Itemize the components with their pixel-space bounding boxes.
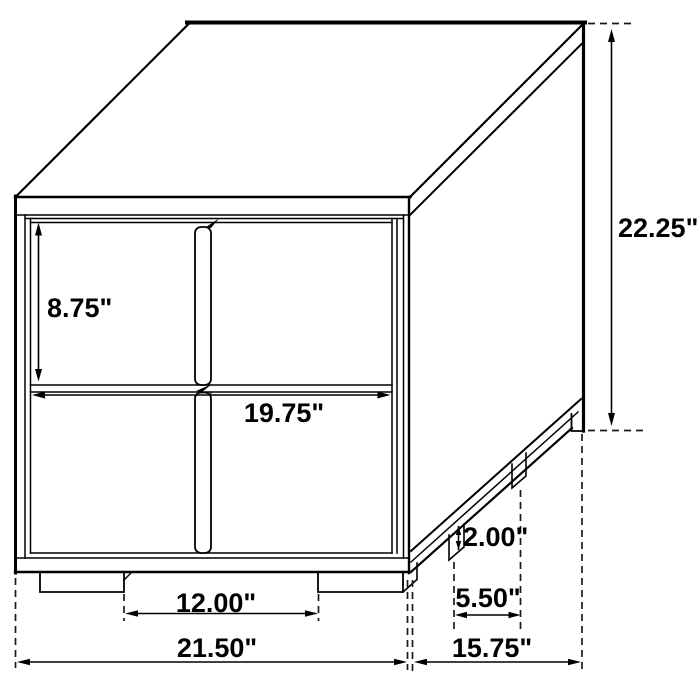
label-side-leg-spacing: 5.50" [455, 583, 520, 613]
label-drawer-width: 19.75" [244, 398, 324, 428]
extension-lines [16, 24, 649, 672]
legs [40, 414, 584, 592]
dim-line-leg-height [456, 526, 461, 550]
dimension-lines [17, 29, 615, 665]
dimension-labels: 8.75" 19.75" 22.25" 2.00" 5.50" 12.00" 2… [47, 213, 698, 663]
label-overall-depth: 15.75" [452, 633, 532, 663]
nightstand-line-drawing: 8.75" 19.75" 22.25" 2.00" 5.50" 12.00" 2… [0, 0, 700, 700]
label-front-leg-spacing: 12.00" [176, 588, 256, 618]
front-face [15, 196, 410, 573]
label-overall-height: 22.25" [618, 213, 698, 243]
dim-line-overall-height [608, 29, 615, 426]
dimension-diagram: 8.75" 19.75" 22.25" 2.00" 5.50" 12.00" 2… [0, 0, 700, 700]
label-drawer-opening-height: 8.75" [47, 293, 112, 323]
label-leg-height: 2.00" [463, 522, 528, 552]
label-overall-width: 21.50" [177, 633, 257, 663]
top-panel [15, 23, 585, 216]
side-panel [411, 23, 584, 573]
dim-line-drawer-opening-height [35, 223, 42, 382]
